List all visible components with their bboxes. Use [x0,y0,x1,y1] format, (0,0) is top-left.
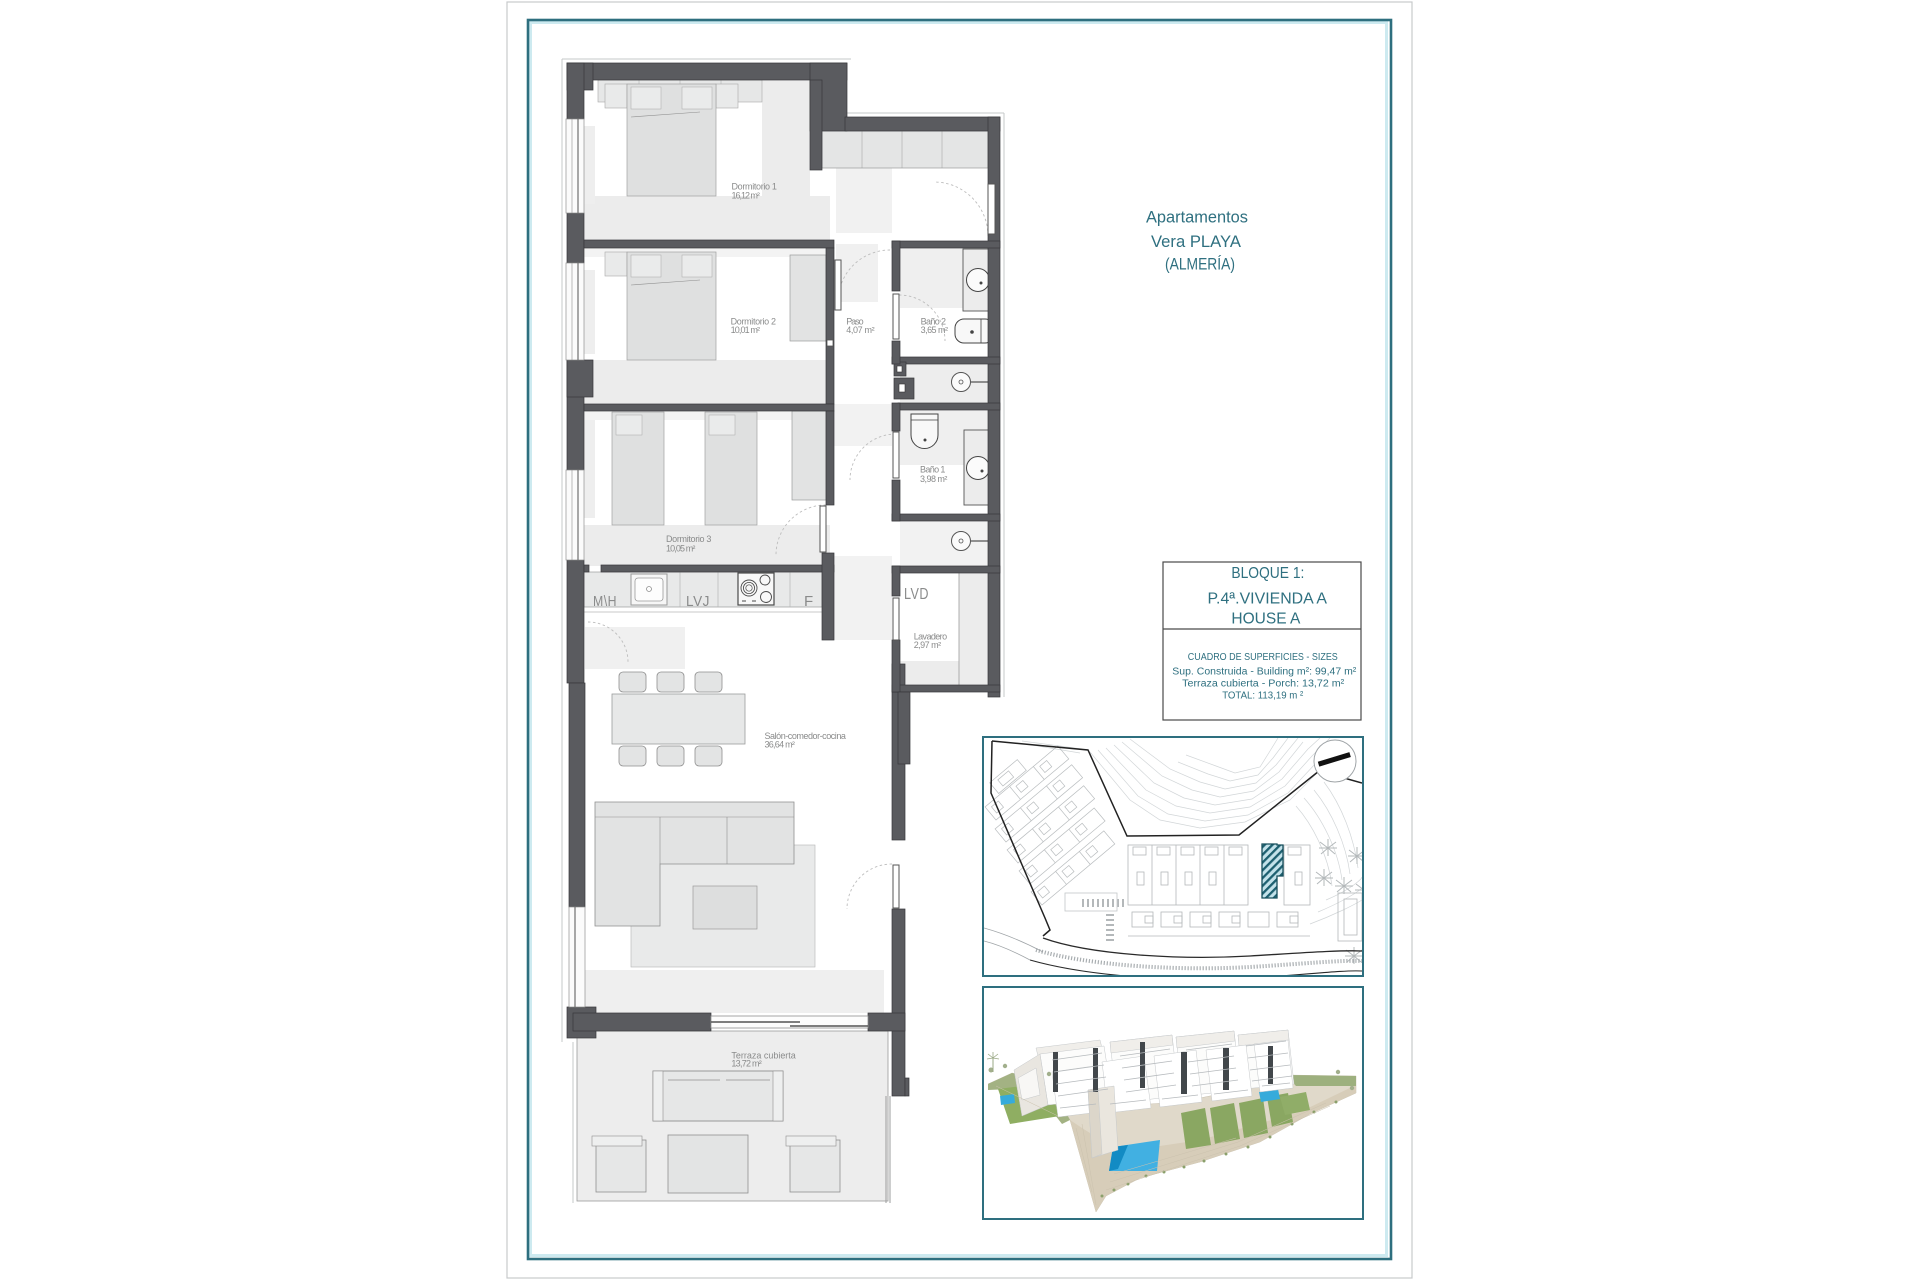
svg-text:36,64 m²: 36,64 m² [765,740,796,750]
svg-text:Terraza cubierta - Porch: 13,: Terraza cubierta - Porch: 13,72 m² [1182,679,1345,690]
svg-text:10,05 m²: 10,05 m² [666,544,696,554]
svg-text:3,65 m²: 3,65 m² [921,325,949,335]
svg-text:M\H: M\H [593,593,617,610]
svg-text:F: F [804,593,814,610]
svg-text:2,97 m²: 2,97 m² [914,640,942,650]
svg-text:Vera PLAYA: Vera PLAYA [1151,233,1241,251]
svg-text:13,72 m²: 13,72 m² [731,1059,762,1069]
svg-text:4,07 m²: 4,07 m² [846,325,875,335]
svg-text:3,98 m²: 3,98 m² [920,474,948,484]
svg-text:P.4ª.VIVIENDA A: P.4ª.VIVIENDA A [1208,591,1328,608]
svg-text:16,12 m²: 16,12 m² [732,190,761,200]
svg-text:10,01 m²: 10,01 m² [731,325,761,335]
svg-text:Sup. Construida - Building m²: Sup. Construida - Building m²: 99,47 m² [1172,667,1357,678]
svg-text:HOUSE A: HOUSE A [1231,610,1300,627]
svg-text:BLOQUE 1:: BLOQUE 1: [1231,565,1304,582]
svg-text:(ALMERÍA): (ALMERÍA) [1165,255,1235,274]
svg-text:Dormitorio 3: Dormitorio 3 [666,534,712,544]
svg-text:CUADRO DE SUPERFICIES - SIZES: CUADRO DE SUPERFICIES - SIZES [1188,652,1338,663]
svg-text:TOTAL: 113,19 m ²: TOTAL: 113,19 m ² [1222,691,1304,702]
svg-text:Apartamentos: Apartamentos [1146,209,1248,227]
svg-text:LVJ: LVJ [686,593,710,610]
svg-text:LVD: LVD [904,586,929,603]
